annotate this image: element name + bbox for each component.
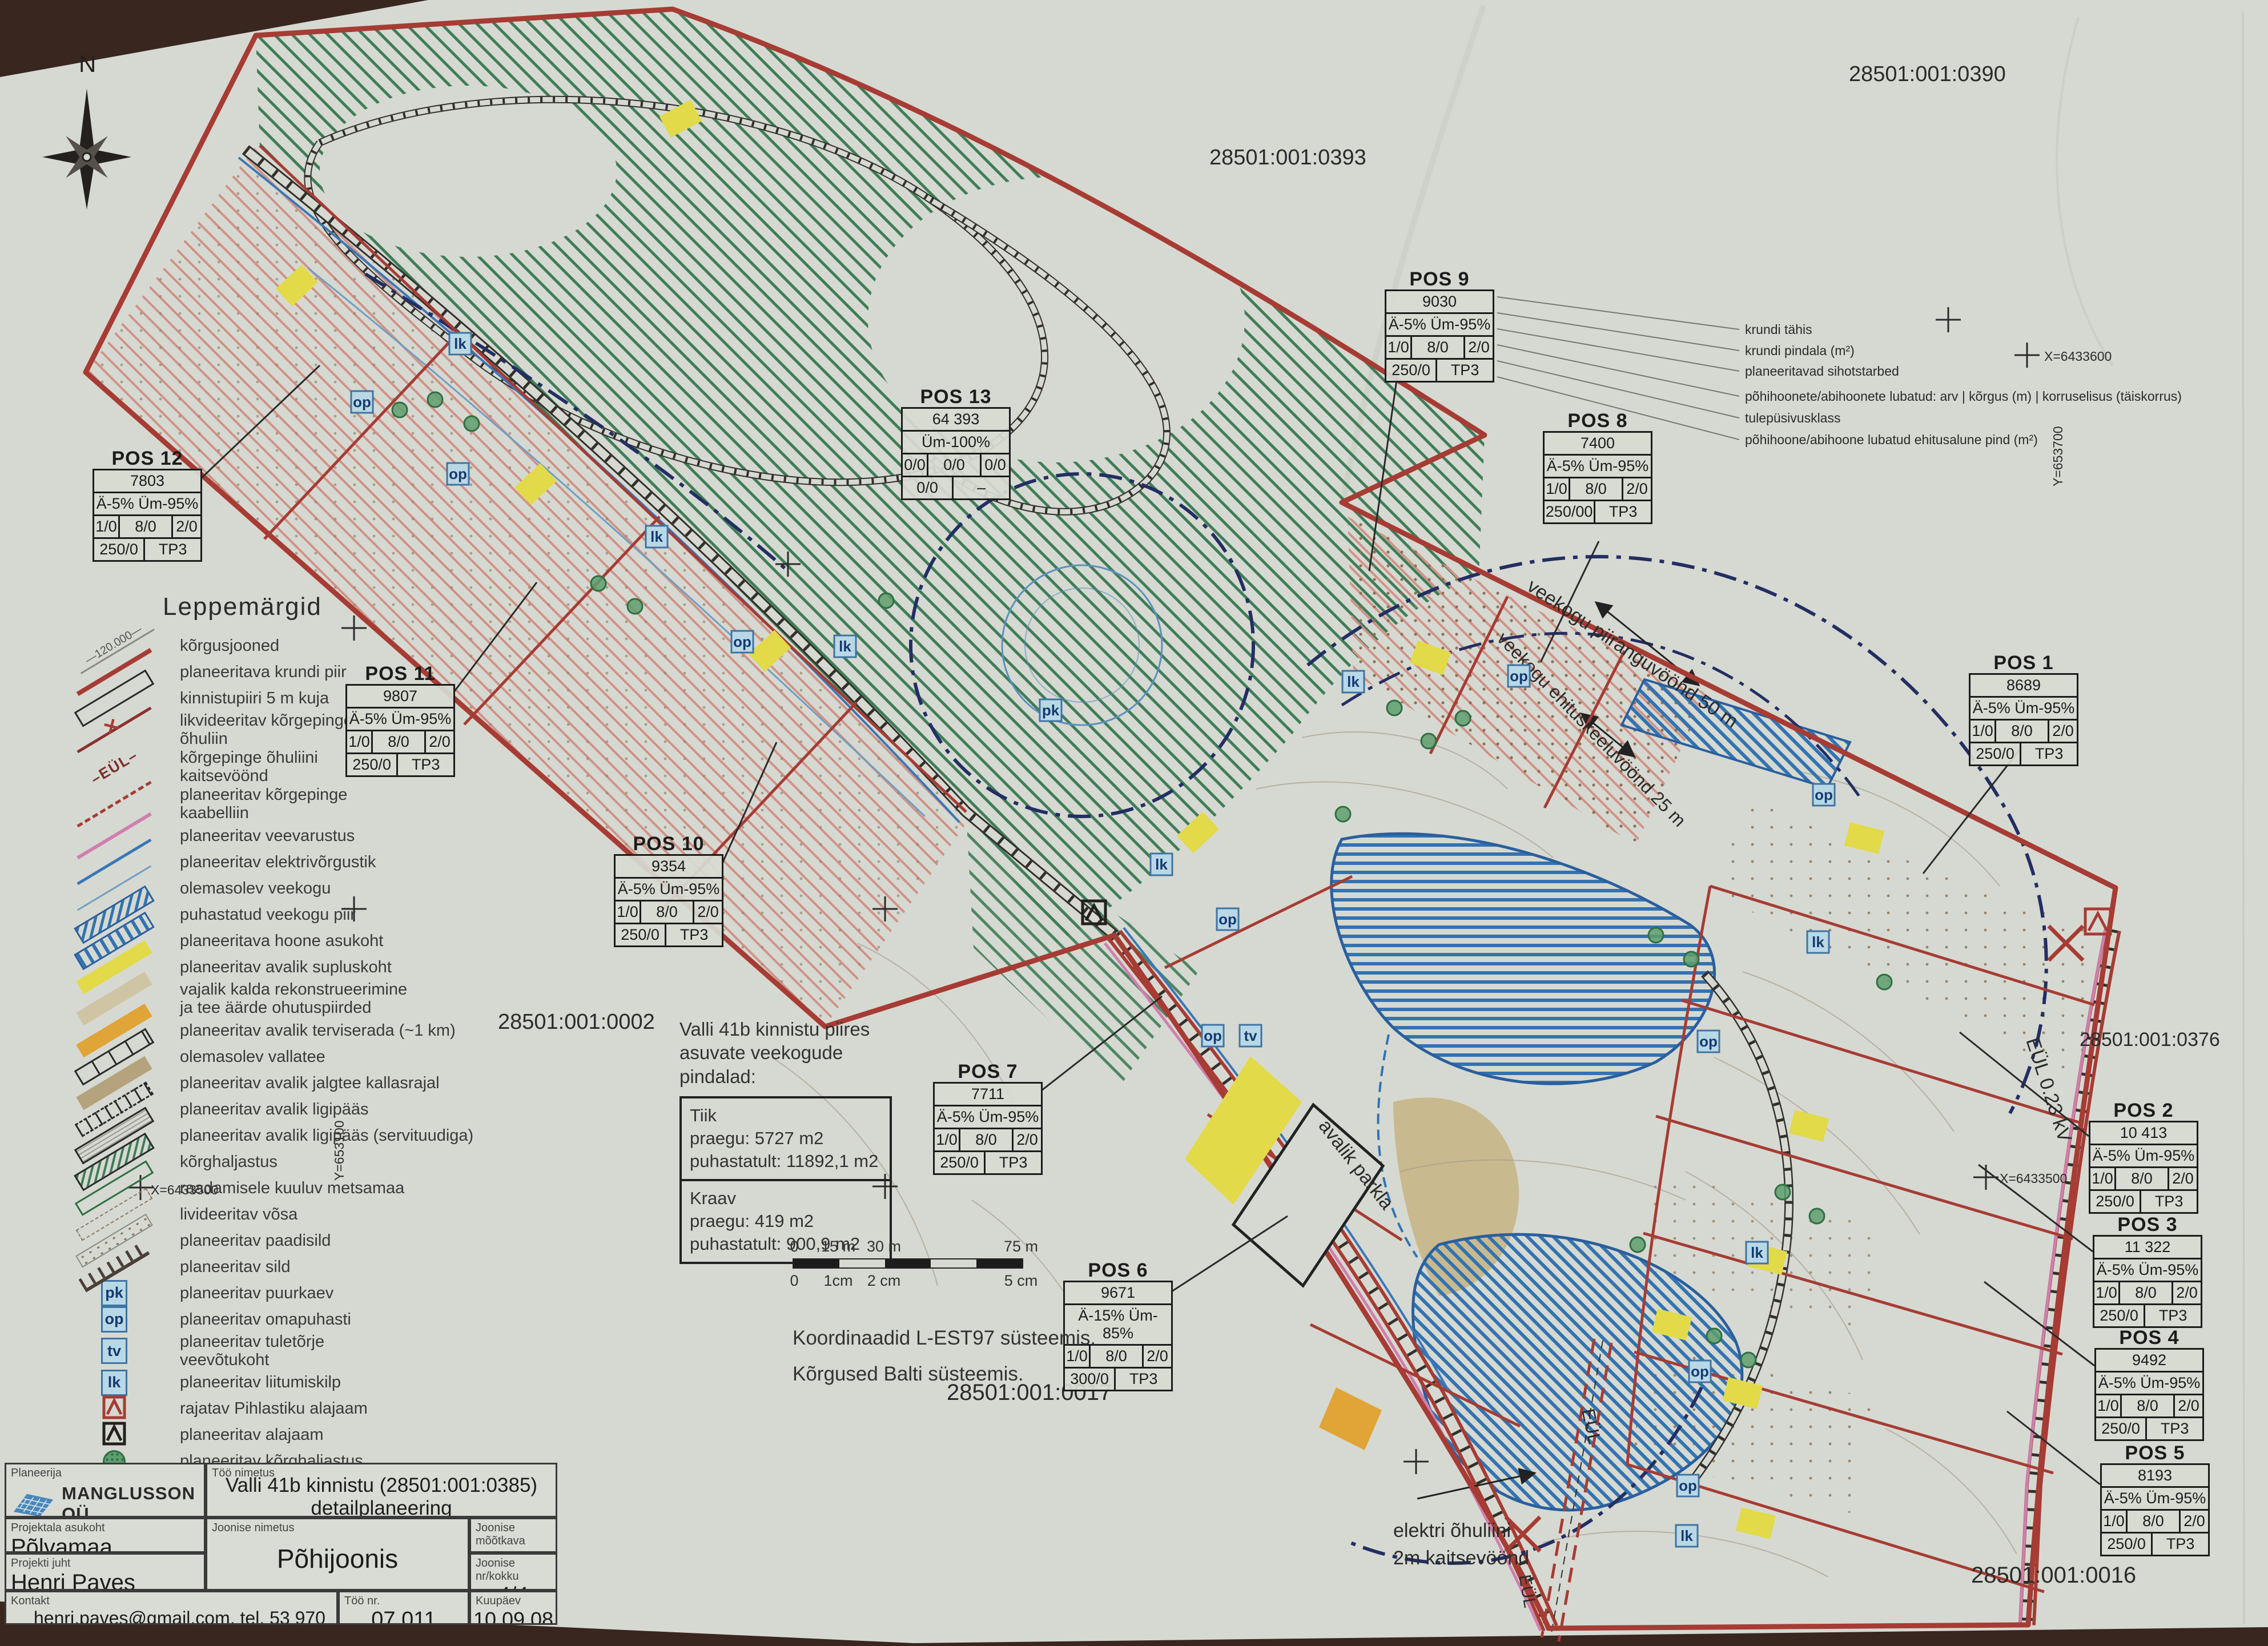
- legend-item: –EÜL–kõrgepinge õhuliini kaitsevöönd: [49, 748, 637, 786]
- green-hatch-bar-symbol: [49, 1149, 180, 1174]
- utility-chip-op: op: [1508, 665, 1530, 687]
- cadastral-number: 28501:001:0376: [2080, 1029, 2220, 1051]
- legend-item-label: kõrgusjooned: [180, 637, 637, 655]
- svg-text:op: op: [1815, 786, 1833, 803]
- pos-box-pos-3: POS 311 322Ä-5% Üm-95%1/08/02/0250/0TP3: [2093, 1214, 2202, 1328]
- pos-box-pos-8: POS 87400Ä-5% Üm-95%1/08/02/0250/00TP3: [1543, 410, 1652, 524]
- legend-item: kinnistupiiri 5 m kuja: [49, 685, 637, 711]
- scale-label: 1cm: [823, 1272, 852, 1290]
- blue-hatch-bar-symbol: [49, 902, 180, 927]
- legend-item: opplaneeritav omapuhasti: [49, 1306, 637, 1333]
- legend-item: planeeritav alajaam: [49, 1422, 637, 1448]
- land-use: Üm-100%: [901, 430, 1011, 454]
- scale-bar: 015 m30 m75 m 01cm2 cm5 cm: [793, 1238, 1089, 1293]
- footprint-area: 250/0: [933, 1150, 986, 1175]
- plot-area-m2: 9807: [345, 684, 455, 709]
- legend-item: tvplaneeritav tuletõrje veevõtukoht: [49, 1333, 637, 1370]
- work-title: Valli 41b kinnistu (28501:001:0385): [226, 1474, 537, 1497]
- plot-area-m2: 8193: [2100, 1463, 2210, 1488]
- plot-area-m2: 9030: [1385, 289, 1494, 314]
- paper-edge: [2243, 11, 2244, 1624]
- building-params: 2/0: [2173, 1394, 2204, 1418]
- pos-title: POS 1: [1969, 652, 2078, 675]
- legend-item-label: olemasolev vallatee: [180, 1048, 637, 1066]
- legend-item-label: puhastatud veekogu piir: [180, 905, 637, 924]
- building-params: 1/0: [1385, 335, 1412, 360]
- legend-item-label: planeeritav avalik terviserada (~1 km): [180, 1021, 637, 1040]
- footprint-area: 250/0: [2093, 1303, 2145, 1328]
- date-label: Kuupäev: [476, 1595, 551, 1608]
- building-params: 8/0: [371, 730, 426, 754]
- cadastral-number: 28501:001:0390: [1849, 62, 2006, 86]
- pos-box-pos-7: POS 77711Ä-5% Üm-95%1/08/02/0250/0TP3: [933, 1061, 1043, 1175]
- utility-chip-op: op: [731, 631, 753, 653]
- svg-text:op: op: [1679, 1477, 1697, 1494]
- utility-chip-lk: lk: [449, 333, 471, 355]
- legend-item-label: planeeritav alajaam: [180, 1426, 637, 1444]
- red-dashdot-symbol: [49, 791, 180, 816]
- building-params: 8/0: [2118, 1281, 2173, 1305]
- chip-symbol: lk: [49, 1370, 180, 1395]
- legend-item-label: olemasolev veekogu: [180, 879, 637, 898]
- land-use: Ä-5% Üm-95%: [1385, 312, 1494, 337]
- pos-title: POS 7: [933, 1061, 1043, 1084]
- pos-box-explanation: krundi pindala (m²): [1745, 343, 1855, 358]
- building-params: 2/0: [1012, 1128, 1043, 1152]
- legend-item: likvideeritav kõrgepinge õhuliin: [49, 711, 637, 748]
- fire-class: –: [952, 476, 1011, 500]
- orange-bar-symbol: [49, 1018, 180, 1043]
- company-name: MANGLUSSON OÜ: [62, 1483, 199, 1518]
- legend-item: planeeritav elektrivõrgustik: [49, 849, 637, 875]
- utility-chip-op: op: [1813, 784, 1835, 806]
- map-annotation: X=6433500: [2000, 1171, 2067, 1186]
- fire-class: TP3: [665, 923, 723, 947]
- building-params: 8/0: [1410, 335, 1465, 360]
- chip-symbol: pk: [49, 1281, 180, 1306]
- contour-symbol: —120.000—: [49, 633, 180, 658]
- building-params: 8/0: [2126, 1509, 2181, 1534]
- fire-class: TP3: [143, 537, 202, 562]
- pos-title: POS 4: [2094, 1327, 2204, 1350]
- pos-box-pos-4: POS 49492Ä-5% Üm-95%1/08/02/0250/0TP3: [2094, 1327, 2204, 1441]
- drawing-scale: M 1:1500: [476, 1548, 551, 1553]
- svg-text:lk: lk: [1347, 673, 1360, 690]
- scale-label: 30 m: [867, 1238, 901, 1255]
- fire-class: TP3: [1435, 358, 1494, 383]
- legend-chip: tv: [101, 1338, 127, 1364]
- building-params: 0/0: [927, 453, 982, 477]
- land-use: Ä-5% Üm-95%: [933, 1105, 1043, 1129]
- scale-bar-segments: [793, 1258, 1023, 1269]
- building-params: 1/0: [2100, 1509, 2128, 1534]
- land-use: Ä-5% Üm-95%: [1543, 454, 1652, 478]
- chip-symbol: op: [49, 1307, 180, 1332]
- pos-box-pos-13: POS 1364 393Üm-100%0/00/00/00/0–: [901, 386, 1011, 500]
- scale-label: 2 cm: [867, 1272, 901, 1290]
- land-use: Ä-5% Üm-95%: [2093, 1258, 2202, 1282]
- building-params: 2/0: [2172, 1281, 2202, 1305]
- pos-title: POS 9: [1385, 268, 1494, 291]
- building-params: 2/0: [424, 730, 455, 754]
- legend-item-label: vajalik kalda rekonstrueerimine ja tee ä…: [180, 980, 637, 1017]
- title-block: Planeerija MANGLUSSON OÜ Töö nimetus Val…: [5, 1463, 557, 1625]
- legend-item: planeeritav sild: [49, 1254, 637, 1280]
- pos-title: POS 8: [1543, 410, 1652, 433]
- legend-item: planeeritav veevarustus: [49, 823, 637, 849]
- utility-chip-op: op: [1689, 1361, 1711, 1382]
- footprint-area: 250/0: [1969, 742, 2021, 766]
- plot-area-m2: 7803: [93, 469, 202, 493]
- svg-text:lk: lk: [1680, 1527, 1693, 1544]
- cadastral-number: 28501:001:0393: [1209, 146, 1366, 170]
- legend-item-label: planeeritav avalik ligipääs: [180, 1100, 637, 1118]
- green-outline-bar-symbol: [49, 1176, 180, 1201]
- land-use: Ä-5% Üm-95%: [2100, 1486, 2210, 1511]
- legend-item-label: planeeritav puurkaev: [180, 1284, 637, 1302]
- building-params: 2/0: [693, 900, 723, 924]
- pos-title: POS 13: [901, 386, 1011, 409]
- footprint-area: 0/0: [901, 476, 954, 500]
- dot-bar-symbol: [49, 1228, 180, 1253]
- legend-item-label: livideeritav võsa: [180, 1205, 637, 1224]
- pos-box-pos-2: POS 210 413Ä-5% Üm-95%1/08/02/0250/0TP3: [2089, 1100, 2198, 1214]
- utility-chip-lk: lk: [834, 635, 856, 657]
- legend-item-label: raadamisele kuuluv metsamaa: [180, 1179, 637, 1197]
- water-areas-box: Valli 41b kinnistu piires asuvate veekog…: [679, 1017, 892, 1264]
- blue-line-symbol: [49, 850, 180, 875]
- work-number-label: Töö nr.: [344, 1595, 463, 1608]
- substation-red-symbol: [49, 1397, 180, 1422]
- utility-chip-lk: lk: [1807, 931, 1829, 953]
- pos-box-pos-9: POS 99030Ä-5% Üm-95%1/08/02/0250/0TP3: [1385, 268, 1494, 383]
- tan-bar-symbol: [49, 1070, 180, 1096]
- red-line-symbol: [49, 659, 180, 685]
- legend-item-label: planeeritava hoone asukoht: [180, 932, 637, 950]
- legend-item-label: planeeritav omapuhasti: [180, 1310, 637, 1329]
- plot-area-m2: 10 413: [2089, 1121, 2198, 1145]
- plot-area-m2: 9492: [2094, 1348, 2204, 1373]
- legend-item-label: planeeritav veevarustus: [180, 827, 637, 845]
- utility-chip-pk: pk: [1040, 699, 1061, 721]
- drawing-date: 10.09.08: [476, 1608, 551, 1625]
- eul-dash-symbol: –EÜL–: [49, 754, 180, 779]
- legend-chip: lk: [101, 1370, 127, 1396]
- pos-title: POS 2: [2089, 1100, 2198, 1122]
- footprint-area: 250/0: [345, 752, 398, 777]
- building-params: 8/0: [2120, 1394, 2175, 1418]
- legend-item: lkplaneeritav liitumiskilp: [49, 1370, 637, 1396]
- building-params: 8/0: [118, 514, 173, 539]
- legend-items: —120.000—kõrgusjoonedplaneeritava krundi…: [49, 633, 637, 1475]
- fire-class: TP3: [984, 1150, 1043, 1175]
- map-annotation: elektri õhuliini: [1393, 1520, 1511, 1542]
- legend-item-label: planeeritav sild: [180, 1258, 637, 1276]
- fire-class: TP3: [396, 752, 455, 777]
- box-bar-symbol: [49, 1044, 180, 1069]
- building-params: 0/0: [901, 453, 928, 477]
- sheet-number-label: Joonise nr/kokku: [476, 1557, 551, 1583]
- land-use: Ä-5% Üm-95%: [345, 707, 455, 731]
- substation-black-symbol: [49, 1423, 180, 1448]
- plot-area-m2: 7711: [933, 1082, 1043, 1106]
- legend-item: planeeritav kõrgepinge kaabelliin: [49, 786, 637, 823]
- svg-text:lk: lk: [839, 638, 851, 655]
- project-location: Põlvamaa: [11, 1535, 199, 1553]
- svg-text:op: op: [1219, 911, 1237, 928]
- svg-text:op: op: [733, 633, 751, 650]
- substation-red-icon: [102, 1395, 127, 1423]
- land-use: Ä-5% Üm-95%: [93, 492, 202, 516]
- work-number: 07.011: [344, 1608, 463, 1625]
- utility-chip-op: op: [1698, 1031, 1719, 1052]
- thin-dash-bar-symbol: [49, 1202, 180, 1227]
- map-annotation: X=6433600: [2044, 349, 2112, 364]
- plot-area-m2: 9354: [614, 854, 723, 879]
- legend-item-label: planeeritav tuletõrje veevõtukoht: [180, 1333, 637, 1370]
- building-params: 8/0: [1569, 477, 1623, 501]
- pos-box-pos-1: POS 18689Ä-5% Üm-95%1/08/02/0250/0TP3: [1969, 652, 2078, 766]
- pos-title: POS 3: [2093, 1214, 2202, 1237]
- building-params: 8/0: [2114, 1166, 2169, 1191]
- utility-chip-lk: lk: [1676, 1525, 1698, 1547]
- land-use: Ä-5% Üm-95%: [614, 877, 723, 902]
- building-params: 8/0: [640, 900, 694, 924]
- building-params: 1/0: [1543, 477, 1570, 501]
- svg-text:lk: lk: [1155, 856, 1168, 873]
- cadastral-number: 28501:001:0016: [1971, 1563, 2136, 1588]
- legend-item-label: planeeritav kõrgepinge kaabelliin: [180, 786, 637, 823]
- footprint-area: 250/0: [614, 923, 666, 947]
- svg-text:op: op: [1510, 667, 1528, 685]
- plot-area-m2: 7400: [1543, 431, 1652, 456]
- logo-grid-icon: [11, 1487, 56, 1518]
- pos-title: POS 10: [614, 833, 723, 856]
- svg-text:lk: lk: [454, 335, 467, 352]
- svg-text:op: op: [1691, 1363, 1709, 1380]
- utility-chip-lk: lk: [1151, 854, 1172, 875]
- legend-item-label: rajatav Pihlastiku alajaam: [180, 1399, 637, 1418]
- utility-chip-tv: tv: [1240, 1025, 1261, 1047]
- building-params: 8/0: [959, 1128, 1014, 1152]
- svg-text:tv: tv: [1244, 1027, 1257, 1044]
- project-location-label: Projektala asukoht: [11, 1522, 199, 1535]
- legend-item-label: planeeritav avalik jalgtee kallasrajal: [180, 1074, 637, 1092]
- footprint-area: 250/0: [1385, 358, 1437, 383]
- pos-title: POS 11: [345, 663, 455, 686]
- svg-text:pk: pk: [1042, 702, 1060, 719]
- map-annotation: 2m kaitsevöönd: [1393, 1547, 1529, 1569]
- footprint-area: 250/0: [2100, 1532, 2153, 1556]
- drawing-name: Põhijoonis: [212, 1535, 463, 1583]
- project-manager: Henri Paves: [11, 1570, 199, 1591]
- svg-text:lk: lk: [650, 528, 663, 545]
- pos-title: POS 5: [2100, 1442, 2210, 1465]
- drawing-name-label: Joonise nimetus: [212, 1522, 463, 1535]
- contact-info: henri.paves@gmail.com, tel. 53 970 610: [11, 1608, 332, 1625]
- forest-clearing: [320, 86, 617, 257]
- thin-line-symbol: [49, 876, 180, 901]
- building-params: 1/0: [614, 900, 641, 924]
- building-params: 1/0: [1969, 719, 1996, 743]
- fire-class: TP3: [2020, 742, 2078, 766]
- pos-box-explanation: põhihoonete/abihoonete lubatud: arv | kõ…: [1745, 389, 2182, 404]
- fire-class: TP3: [2140, 1189, 2198, 1214]
- contact-label: Kontakt: [11, 1595, 332, 1608]
- company-logo: MANGLUSSON OÜ: [11, 1483, 199, 1518]
- chip-symbol: tv: [49, 1338, 180, 1363]
- pond-areas: Tiik praegu: 5727 m2 puhastatult: 11892,…: [682, 1098, 890, 1179]
- pos-box-explanation: tulepüsivusklass: [1745, 411, 1840, 425]
- legend-chip: pk: [101, 1280, 127, 1306]
- legend-item-label: planeeritav avalik ligipääs (servituudig…: [180, 1126, 637, 1145]
- building-params: 1/0: [345, 730, 373, 754]
- utility-chip-op: op: [1677, 1475, 1699, 1496]
- pos-box-pos-10: POS 109354Ä-5% Üm-95%1/08/02/0250/0TP3: [614, 833, 723, 947]
- scanned-detail-plan-photo: N 28501:001:039028501:001:039328501:001:…: [0, 0, 2268, 1646]
- legend-item-label: planeeritav liitumiskilp: [180, 1373, 637, 1391]
- pos-box-pos-12: POS 127803Ä-5% Üm-95%1/08/02/0250/0TP3: [93, 448, 202, 562]
- scale-label: Joonise mõõtkava: [476, 1522, 551, 1548]
- scale-label: 75 m: [1004, 1238, 1038, 1255]
- legend-chip: op: [101, 1306, 127, 1333]
- fire-class: TP3: [2144, 1303, 2202, 1328]
- building-params: 2/0: [2048, 719, 2078, 743]
- comb-symbol: [49, 1254, 180, 1279]
- building-params: 2/0: [2168, 1166, 2198, 1191]
- building-params: 2/0: [1463, 335, 1494, 360]
- svg-text:op: op: [1204, 1027, 1222, 1044]
- project-manager-label: Projekti juht: [11, 1557, 199, 1570]
- footprint-area: 250/0: [2094, 1416, 2147, 1441]
- legend-item-label: kõrghaljastus: [180, 1153, 637, 1171]
- svg-text:lk: lk: [1812, 933, 1824, 951]
- legend-title: Leppemärgid: [163, 593, 637, 621]
- svg-text:lk: lk: [1751, 1244, 1763, 1261]
- utility-chip-lk: lk: [1746, 1242, 1768, 1263]
- scale-label: 0: [790, 1238, 798, 1255]
- footprint-area: 250/0: [93, 537, 145, 562]
- building-params: 1/0: [2093, 1281, 2120, 1305]
- land-use: Ä-5% Üm-95%: [2089, 1144, 2198, 1168]
- legend: Leppemärgid —120.000—kõrgusjoonedplaneer…: [49, 593, 637, 1475]
- building-params: 1/0: [93, 514, 120, 539]
- sheet-number: 4/4: [476, 1583, 551, 1591]
- dash-box-bar-symbol: [49, 1097, 180, 1122]
- eul-text: –EÜL–: [87, 746, 140, 788]
- outline-hatch-bar-symbol: [49, 1123, 180, 1148]
- footprint-area: 250/0: [2089, 1189, 2141, 1214]
- building-params: 2/0: [171, 514, 202, 539]
- pos-box-explanation: planeeritavad sihotstarbed: [1745, 364, 1899, 379]
- x-line-symbol: [49, 717, 180, 742]
- legend-item: rajatav Pihlastiku alajaam: [49, 1396, 637, 1422]
- footprint-area: 250/00: [1543, 500, 1595, 524]
- building-params: 1/0: [2089, 1166, 2116, 1191]
- coordinate-system-note: Koordinaadid L-EST97 süsteemis. Kõrgused…: [793, 1320, 1158, 1392]
- land-use: Ä-5% Üm-95%: [1969, 696, 2078, 721]
- svg-text:op: op: [1699, 1033, 1718, 1050]
- outline-bar-symbol: [49, 686, 180, 711]
- svg-text:op: op: [449, 465, 467, 482]
- building-params: 1/0: [933, 1128, 960, 1152]
- utility-chip-op: op: [447, 463, 469, 485]
- fire-class: TP3: [2145, 1416, 2204, 1441]
- utility-chip-op: op: [1202, 1025, 1224, 1047]
- map-annotation: Y=653700: [2050, 426, 2065, 486]
- scale-label: 15 m: [821, 1238, 855, 1255]
- fire-class: TP3: [2151, 1532, 2210, 1556]
- north-label: N: [79, 50, 96, 77]
- blue-ladder-bar-symbol: [49, 928, 180, 953]
- yellow-bar-symbol: [49, 955, 180, 980]
- building-params: 8/0: [1994, 719, 2049, 743]
- legend-item-label: planeeritav elektrivõrgustik: [180, 853, 637, 871]
- planner-label: Planeerija: [11, 1467, 199, 1480]
- land-use: Ä-5% Üm-95%: [2094, 1371, 2204, 1395]
- eul-symbol: –EÜL–: [87, 746, 141, 788]
- plot-area-m2: 11 322: [2093, 1235, 2202, 1259]
- svg-text:op: op: [353, 393, 371, 411]
- pink-line-symbol: [49, 823, 180, 848]
- utility-chip-op: op: [1217, 908, 1238, 930]
- utility-chip-lk: lk: [646, 526, 667, 548]
- scale-label: 0: [790, 1272, 798, 1290]
- plot-area-m2: 64 393: [901, 407, 1011, 432]
- substation-black-icon: [102, 1421, 127, 1449]
- legend-item: pkplaneeritav puurkaev: [49, 1280, 637, 1306]
- pos-box-pos-5: POS 58193Ä-5% Üm-95%1/08/02/0250/0TP3: [2100, 1442, 2210, 1556]
- utility-chip-op: op: [351, 391, 373, 413]
- legend-item-label: planeeritav paadisild: [180, 1232, 637, 1250]
- pos-box-pos-11: POS 119807Ä-5% Üm-95%1/08/02/0250/0TP3: [345, 663, 455, 777]
- legend-item-label: planeeritav avalik supluskoht: [180, 958, 637, 976]
- utility-chip-lk: lk: [1342, 671, 1364, 693]
- pos-box-explanation: põhihoone/abihoone lubatud ehitusalune p…: [1745, 432, 2038, 447]
- beige-bar-symbol: [49, 986, 180, 1011]
- fire-class: TP3: [1594, 500, 1652, 524]
- building-params: 2/0: [1622, 477, 1652, 501]
- building-params: 1/0: [2094, 1394, 2122, 1418]
- building-params: 0/0: [980, 453, 1011, 477]
- plot-area-m2: 8689: [1969, 673, 2078, 698]
- work-title-2: detailplaneering: [311, 1497, 452, 1518]
- pos-box-explanation: krundi tähis: [1745, 322, 1812, 337]
- pos-title: POS 12: [93, 448, 202, 470]
- scale-label: 5 cm: [1004, 1272, 1038, 1290]
- building-params: 2/0: [2179, 1509, 2210, 1534]
- water-areas-title: Valli 41b kinnistu piires asuvate veekog…: [679, 1017, 892, 1088]
